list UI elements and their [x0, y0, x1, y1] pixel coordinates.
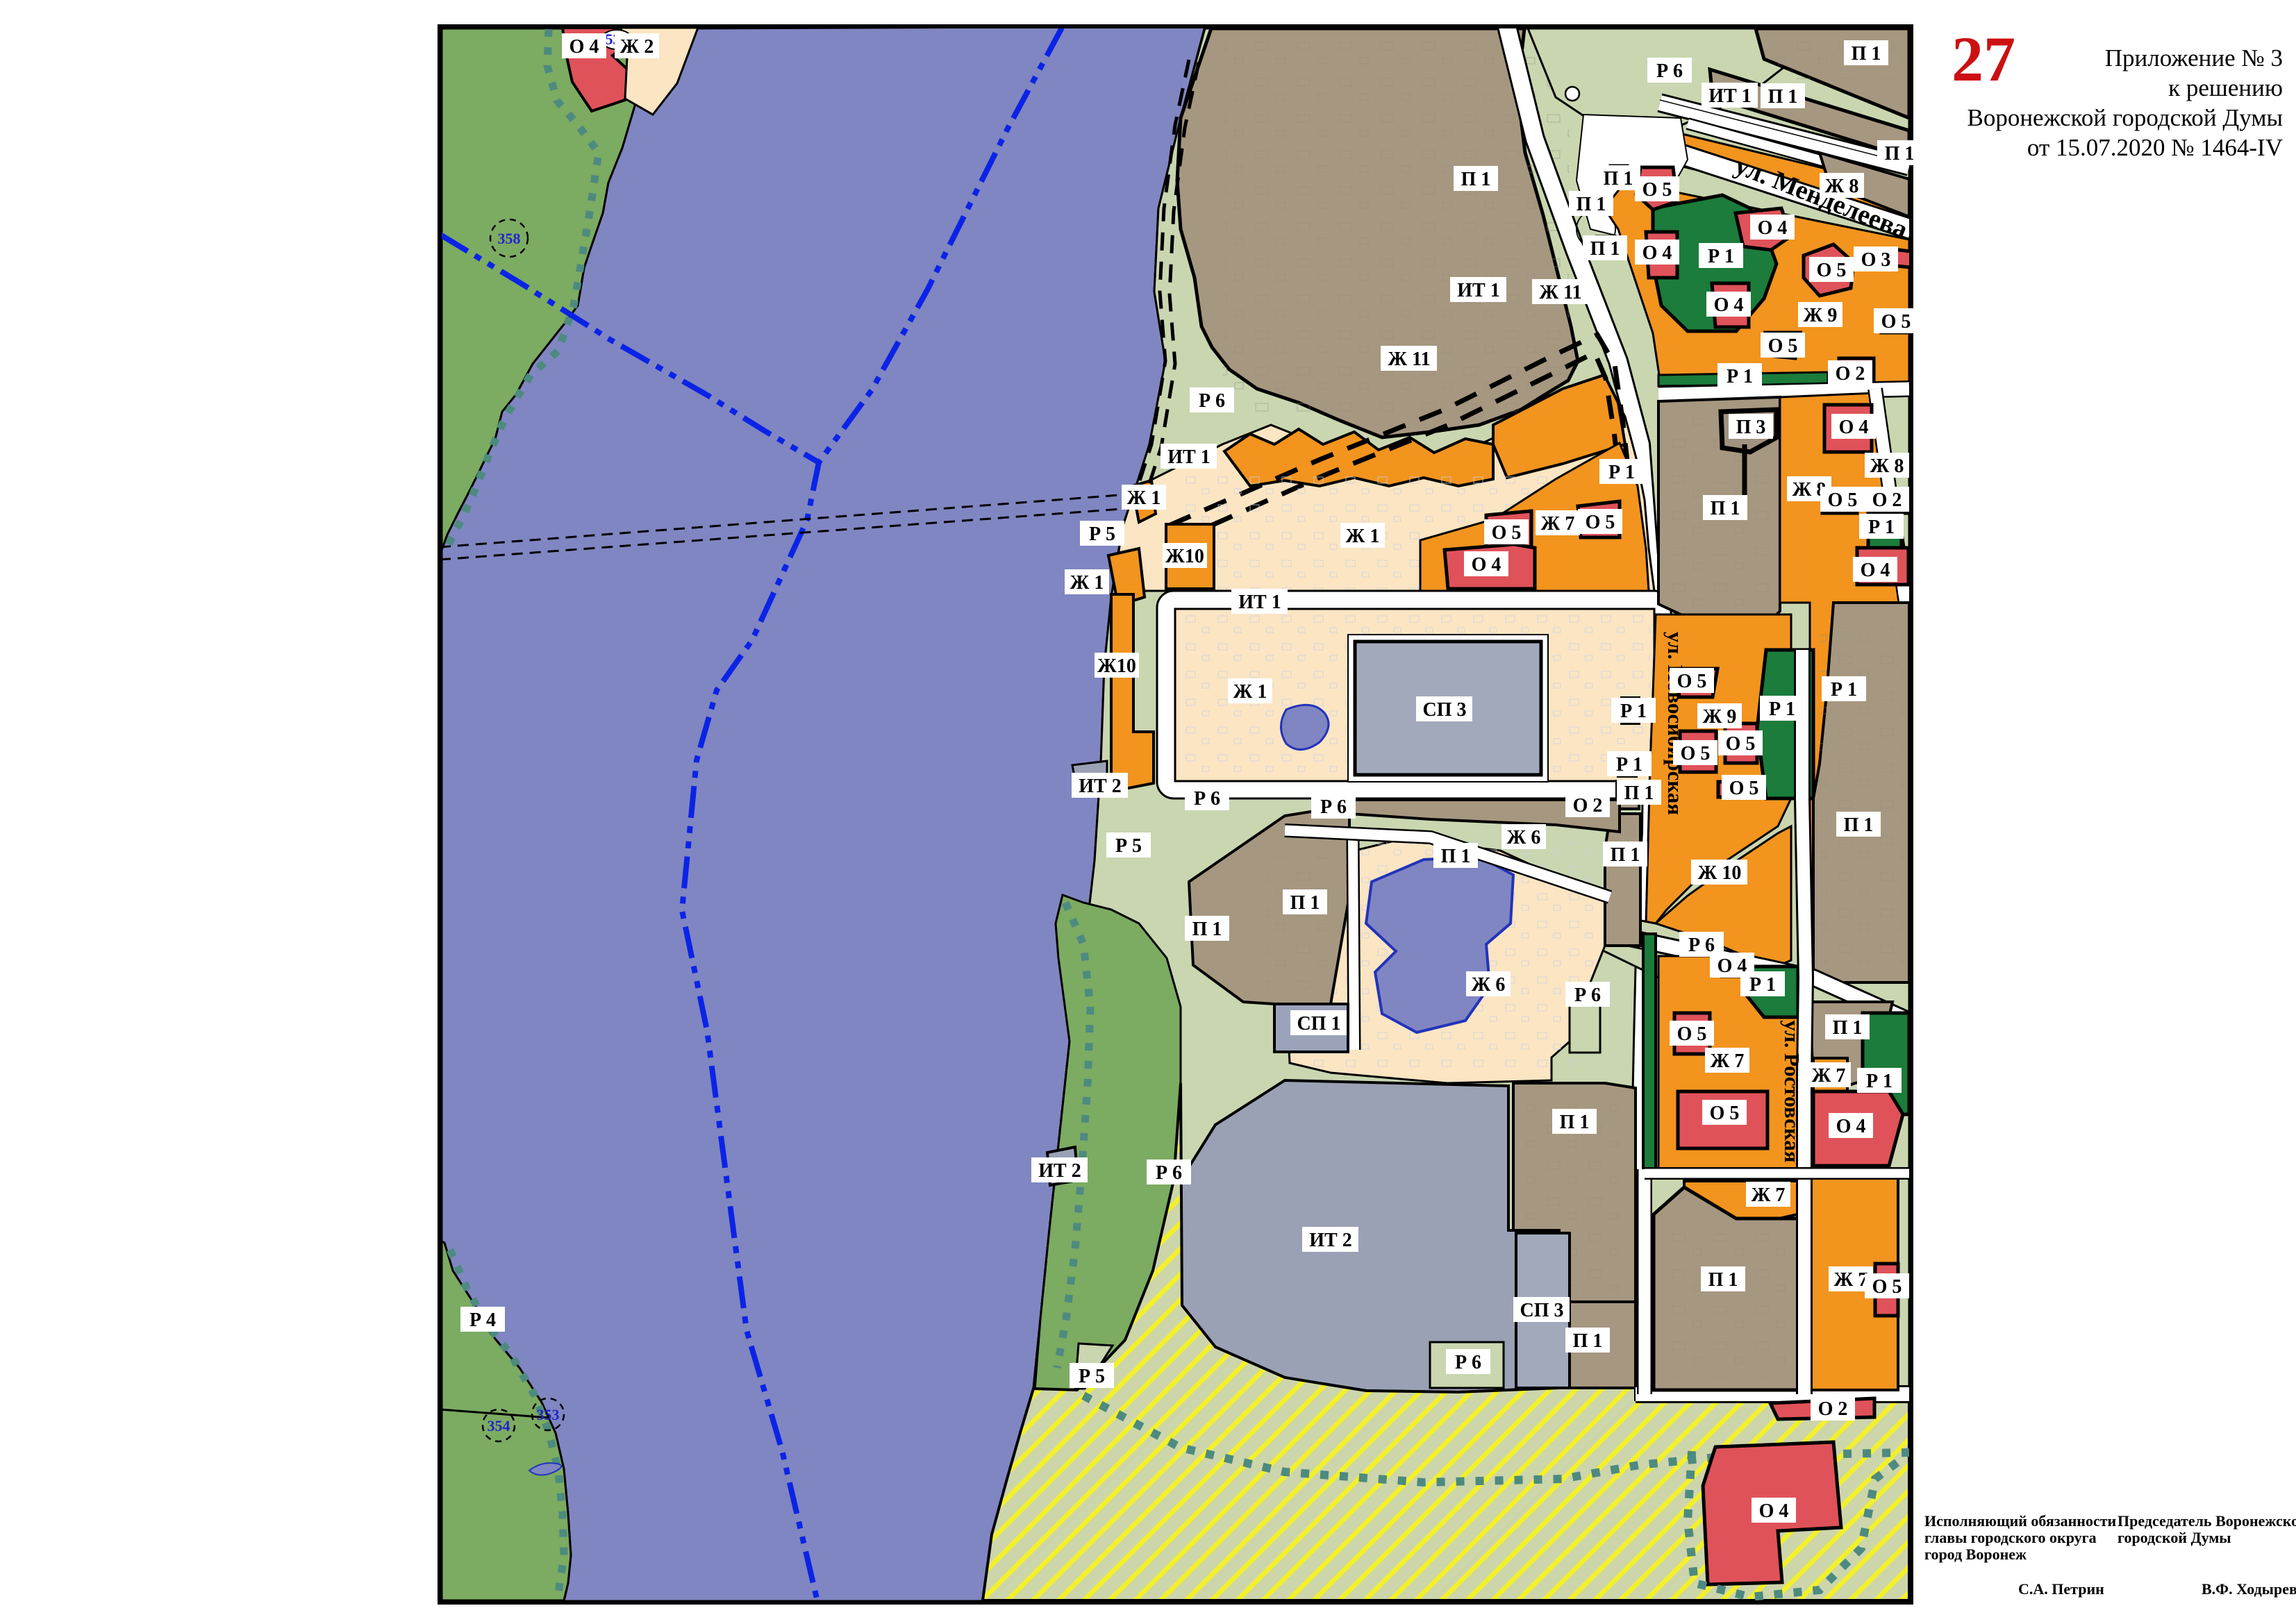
svg-text:Р 4: Р 4 — [469, 1309, 496, 1331]
svg-text:Р 6: Р 6 — [1574, 985, 1601, 1006]
svg-text:СП 3: СП 3 — [1520, 1300, 1564, 1321]
svg-text:Исполняющий обязанности: Исполняющий обязанности — [1924, 1512, 2117, 1530]
svg-text:О 4: О 4 — [1472, 554, 1501, 576]
svg-text:Ж 6: Ж 6 — [1507, 827, 1541, 848]
svg-text:О 2: О 2 — [1836, 363, 1865, 385]
svg-text:Приложение № 3: Приложение № 3 — [2105, 44, 2283, 72]
svg-text:П 1: П 1 — [1590, 238, 1620, 260]
svg-text:П 1: П 1 — [1560, 1112, 1590, 1133]
svg-text:Р 1: Р 1 — [1608, 462, 1635, 483]
svg-text:Ж 1: Ж 1 — [1127, 487, 1161, 509]
svg-text:СП 3: СП 3 — [1423, 699, 1467, 721]
svg-text:Ж 11: Ж 11 — [1388, 349, 1430, 370]
svg-text:Р 1: Р 1 — [1616, 754, 1642, 776]
svg-text:Р 6: Р 6 — [1156, 1162, 1182, 1184]
svg-text:Р 6: Р 6 — [1656, 60, 1683, 82]
svg-text:Р 6: Р 6 — [1455, 1352, 1481, 1373]
svg-text:ИТ 1: ИТ 1 — [1238, 592, 1281, 613]
svg-text:городской Думы: городской Думы — [2118, 1529, 2231, 1546]
svg-text:О 4: О 4 — [1758, 217, 1788, 239]
svg-text:Ж 8: Ж 8 — [1825, 176, 1859, 197]
svg-text:Ж 9: Ж 9 — [1804, 305, 1838, 326]
svg-text:Р 1: Р 1 — [1620, 701, 1647, 722]
svg-text:О 5: О 5 — [1677, 1023, 1707, 1045]
svg-text:О 5: О 5 — [1872, 1276, 1902, 1298]
svg-text:О 5: О 5 — [1817, 260, 1847, 281]
svg-text:П 1: П 1 — [1192, 919, 1222, 940]
svg-text:П 1: П 1 — [1708, 1269, 1738, 1291]
svg-text:П 1: П 1 — [1885, 143, 1915, 165]
svg-text:О 4: О 4 — [1759, 1500, 1789, 1522]
svg-text:Ж 7: Ж 7 — [1541, 513, 1575, 535]
svg-text:ул. Новосибирская: ул. Новосибирская — [1663, 632, 1688, 815]
svg-text:город Воронеж: город Воронеж — [1924, 1546, 2027, 1563]
svg-text:ИТ 1: ИТ 1 — [1457, 280, 1499, 301]
svg-text:О 2: О 2 — [1872, 489, 1902, 511]
svg-text:СП 1: СП 1 — [1297, 1013, 1341, 1035]
svg-text:П 1: П 1 — [1711, 498, 1740, 519]
svg-text:О 5: О 5 — [1681, 743, 1711, 764]
svg-text:Ж 1: Ж 1 — [1070, 572, 1104, 594]
svg-text:О 4: О 4 — [1836, 1116, 1866, 1137]
svg-text:358: 358 — [498, 230, 521, 247]
svg-text:Ж10: Ж10 — [1097, 655, 1136, 677]
svg-text:О 5: О 5 — [1828, 489, 1858, 511]
svg-text:О 3: О 3 — [1861, 249, 1891, 271]
svg-text:О 4: О 4 — [1642, 242, 1672, 264]
svg-text:Воронежской городской Думы: Воронежской городской Думы — [1967, 104, 2283, 131]
svg-text:П 1: П 1 — [1461, 169, 1491, 190]
svg-text:Ж 7: Ж 7 — [1812, 1065, 1846, 1087]
svg-text:Председатель Воронежской: Председатель Воронежской — [2118, 1512, 2296, 1530]
svg-text:от 15.07.2020 № 1464-IV: от 15.07.2020 № 1464-IV — [2027, 134, 2283, 161]
svg-text:ул. Ростовская: ул. Ростовская — [1780, 1020, 1804, 1162]
svg-text:Ж 6: Ж 6 — [1472, 974, 1506, 996]
svg-text:Ж 7: Ж 7 — [1752, 1184, 1786, 1206]
svg-text:Ж 1: Ж 1 — [1346, 526, 1380, 547]
svg-text:Р 1: Р 1 — [1708, 246, 1734, 267]
svg-text:Р 1: Р 1 — [1727, 366, 1753, 387]
svg-text:П 1: П 1 — [1844, 814, 1874, 836]
svg-text:Р 1: Р 1 — [1831, 679, 1857, 701]
svg-text:Р 1: Р 1 — [1769, 698, 1795, 720]
svg-text:О 5: О 5 — [1768, 335, 1798, 357]
svg-text:Ж 9: Ж 9 — [1703, 706, 1737, 728]
svg-text:Ж 11: Ж 11 — [1539, 282, 1581, 303]
svg-text:ИТ 2: ИТ 2 — [1038, 1160, 1081, 1182]
svg-text:Р 1: Р 1 — [1868, 517, 1895, 538]
svg-text:О 4: О 4 — [569, 36, 599, 58]
svg-text:Р 5: Р 5 — [1089, 524, 1115, 545]
svg-text:П 1: П 1 — [1833, 1017, 1863, 1039]
svg-text:О 5: О 5 — [1586, 512, 1615, 533]
svg-text:О 5: О 5 — [1677, 671, 1707, 692]
svg-text:В.Ф. Ходырев: В.Ф. Ходырев — [2202, 1580, 2296, 1598]
svg-text:Р 5: Р 5 — [1115, 835, 1142, 857]
svg-text:П 1: П 1 — [1577, 194, 1606, 215]
svg-text:О 5: О 5 — [1642, 179, 1672, 201]
svg-text:О 2: О 2 — [1818, 1398, 1848, 1420]
svg-text:О 5: О 5 — [1726, 733, 1756, 755]
svg-text:П 1: П 1 — [1624, 782, 1654, 804]
svg-text:Ж 8: Ж 8 — [1870, 455, 1904, 477]
svg-text:Ж 1: Ж 1 — [1233, 681, 1267, 703]
svg-text:Ж10: Ж10 — [1165, 546, 1204, 567]
svg-text:О 4: О 4 — [1714, 294, 1744, 316]
svg-text:ИТ 2: ИТ 2 — [1079, 776, 1121, 797]
svg-text:П 3: П 3 — [1736, 417, 1766, 438]
svg-text:О 5: О 5 — [1881, 311, 1911, 333]
svg-text:353: 353 — [537, 1406, 560, 1423]
svg-text:П 1: П 1 — [1768, 86, 1798, 108]
svg-text:Р 6: Р 6 — [1199, 390, 1225, 412]
svg-text:О 4: О 4 — [1839, 417, 1869, 438]
svg-text:О 5: О 5 — [1710, 1103, 1740, 1124]
svg-text:Р 1: Р 1 — [1749, 974, 1776, 996]
svg-text:27: 27 — [1952, 24, 2015, 94]
svg-text:к решению: к решению — [2168, 74, 2283, 101]
svg-text:П 1: П 1 — [1604, 168, 1633, 190]
svg-text:О 4: О 4 — [1861, 560, 1890, 581]
svg-text:П 1: П 1 — [1611, 844, 1640, 866]
svg-text:главы городского округа: главы городского округа — [1924, 1529, 2097, 1546]
svg-text:ИТ 1: ИТ 1 — [1708, 85, 1751, 107]
svg-text:О 2: О 2 — [1573, 795, 1603, 817]
svg-text:Р 6: Р 6 — [1320, 796, 1347, 818]
svg-text:354: 354 — [488, 1417, 510, 1434]
svg-text:Ж 7: Ж 7 — [1834, 1269, 1868, 1291]
svg-text:П 1: П 1 — [1852, 43, 1881, 65]
svg-text:Ж 7: Ж 7 — [1711, 1050, 1745, 1072]
svg-text:Р 6: Р 6 — [1194, 788, 1220, 810]
svg-text:ИТ 1: ИТ 1 — [1167, 446, 1210, 468]
svg-text:Р 5: Р 5 — [1079, 1366, 1105, 1387]
svg-text:С.А. Петрин: С.А. Петрин — [2018, 1580, 2104, 1598]
svg-text:Р 1: Р 1 — [1866, 1071, 1892, 1092]
svg-text:П 1: П 1 — [1441, 846, 1471, 867]
svg-text:О 5: О 5 — [1729, 778, 1759, 799]
svg-text:Ж 10: Ж 10 — [1698, 862, 1742, 884]
svg-text:ИТ 2: ИТ 2 — [1309, 1230, 1351, 1251]
svg-text:П 1: П 1 — [1290, 892, 1320, 914]
svg-text:П 1: П 1 — [1573, 1330, 1603, 1352]
svg-text:О 5: О 5 — [1492, 522, 1522, 544]
svg-text:Ж 2: Ж 2 — [620, 36, 654, 58]
